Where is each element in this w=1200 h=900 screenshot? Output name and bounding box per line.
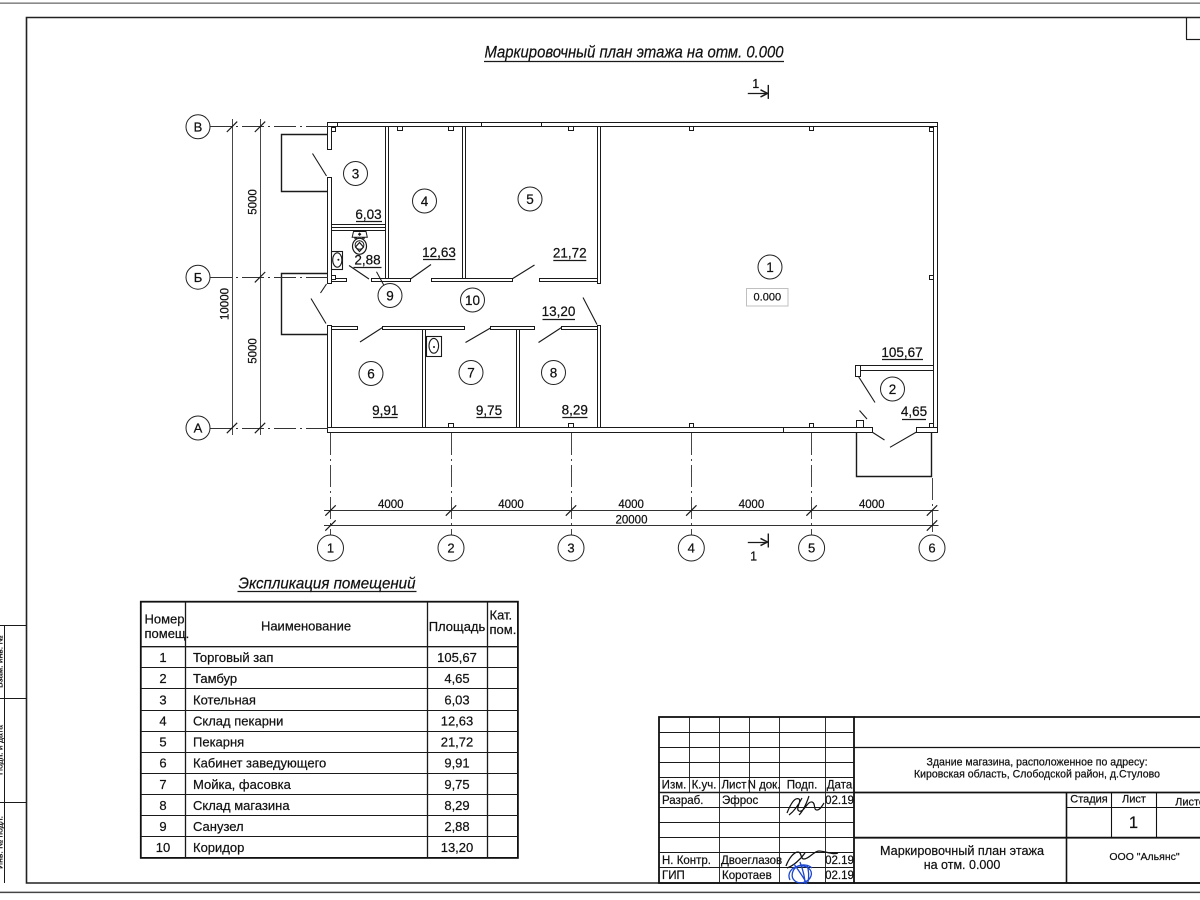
svg-text:21,72: 21,72 [441, 735, 474, 750]
svg-text:4000: 4000 [378, 499, 404, 511]
svg-text:2: 2 [889, 382, 897, 397]
svg-text:Б: Б [194, 270, 203, 285]
svg-text:6,03: 6,03 [355, 207, 381, 222]
svg-text:Номер: Номер [145, 612, 185, 627]
svg-text:1: 1 [159, 650, 166, 665]
svg-text:9: 9 [386, 288, 394, 303]
svg-text:9,75: 9,75 [444, 777, 469, 792]
svg-text:10: 10 [156, 840, 170, 855]
svg-text:4,65: 4,65 [444, 671, 469, 686]
svg-text:6,03: 6,03 [444, 692, 469, 707]
svg-text:1: 1 [766, 260, 774, 275]
svg-text:В: В [194, 119, 203, 134]
svg-text:02.19: 02.19 [825, 795, 854, 807]
svg-text:8: 8 [159, 798, 166, 813]
svg-text:10000: 10000 [220, 288, 232, 320]
svg-text:02.19: 02.19 [825, 855, 854, 867]
svg-text:помещ.: помещ. [145, 626, 190, 641]
svg-text:4: 4 [159, 713, 166, 728]
svg-text:Кат.: Кат. [490, 608, 513, 623]
svg-text:Двоеглазов: Двоеглазов [721, 855, 782, 867]
svg-text:13,20: 13,20 [441, 840, 474, 855]
svg-text:4000: 4000 [498, 499, 524, 511]
svg-text:Эфрос: Эфрос [722, 795, 759, 807]
svg-text:5: 5 [526, 192, 534, 207]
svg-text:1: 1 [752, 77, 759, 91]
svg-text:Лист: Лист [1122, 794, 1146, 806]
svg-text:4: 4 [421, 194, 429, 209]
svg-text:Коридор: Коридор [193, 840, 244, 855]
svg-text:Листов: Листов [1175, 797, 1200, 809]
svg-text:8: 8 [550, 365, 558, 380]
svg-text:5: 5 [159, 735, 166, 750]
svg-text:N док.: N док. [748, 780, 781, 792]
svg-text:Лист: Лист [722, 780, 748, 792]
svg-text:3: 3 [159, 692, 166, 707]
svg-text:4000: 4000 [618, 499, 644, 511]
svg-text:Инв. № подл.: Инв. № подл. [0, 816, 5, 869]
svg-text:Кировская область, Слободской: Кировская область, Слободской район, д.С… [914, 769, 1160, 781]
svg-text:Разраб.: Разраб. [662, 795, 703, 807]
svg-text:Подп.: Подп. [787, 780, 818, 792]
svg-text:пом.: пом. [490, 622, 517, 637]
svg-text:Н. Контр.: Н. Контр. [662, 855, 711, 867]
svg-text:1: 1 [327, 541, 334, 556]
svg-text:105,67: 105,67 [437, 650, 477, 665]
svg-text:Стадия: Стадия [1070, 794, 1108, 806]
svg-text:на отм. 0.000: на отм. 0.000 [924, 858, 1001, 872]
svg-text:7: 7 [467, 365, 475, 380]
svg-text:Мойка, фасовка: Мойка, фасовка [193, 777, 292, 792]
svg-text:Взам. инв. №: Взам. инв. № [0, 635, 5, 688]
svg-text:Санузел: Санузел [193, 819, 244, 834]
svg-text:105,67: 105,67 [881, 345, 922, 360]
svg-text:Коротаев: Коротаев [722, 870, 772, 882]
svg-text:12,63: 12,63 [422, 245, 456, 260]
svg-text:К.уч.: К.уч. [692, 780, 717, 792]
svg-text:3: 3 [567, 541, 574, 556]
svg-text:4: 4 [688, 541, 695, 556]
svg-text:12,63: 12,63 [441, 713, 474, 728]
svg-text:2: 2 [159, 671, 166, 686]
svg-text:8,29: 8,29 [562, 403, 588, 418]
svg-text:А: А [194, 421, 203, 436]
svg-text:Изм.: Изм. [662, 780, 687, 792]
svg-text:2,88: 2,88 [354, 253, 380, 268]
svg-text:21,72: 21,72 [553, 246, 587, 261]
svg-text:1: 1 [750, 550, 757, 564]
svg-text:Кабинет заведующего: Кабинет заведующего [193, 756, 326, 771]
svg-text:9,91: 9,91 [372, 403, 398, 418]
svg-text:Котельная: Котельная [193, 692, 256, 707]
svg-text:Пекарня: Пекарня [193, 735, 244, 750]
svg-text:4000: 4000 [739, 499, 765, 511]
svg-text:ООО "Альянс": ООО "Альянс" [1109, 851, 1179, 863]
svg-text:9,91: 9,91 [444, 756, 469, 771]
svg-text:10: 10 [465, 293, 480, 308]
svg-text:7: 7 [159, 777, 166, 792]
svg-text:Наименование: Наименование [261, 619, 351, 634]
svg-text:5000: 5000 [248, 338, 260, 364]
svg-text:4,65: 4,65 [901, 404, 927, 419]
svg-text:Экспликация помещений: Экспликация помещений [239, 575, 416, 592]
svg-text:9: 9 [159, 819, 166, 834]
svg-text:13,20: 13,20 [542, 304, 576, 319]
svg-text:2,88: 2,88 [444, 819, 469, 834]
svg-text:02.19: 02.19 [825, 870, 854, 882]
svg-text:0.000: 0.000 [754, 292, 782, 304]
svg-text:Торговый зап: Торговый зап [193, 650, 273, 665]
svg-text:5000: 5000 [248, 189, 260, 215]
svg-text:Склад пекарни: Склад пекарни [193, 713, 283, 728]
svg-text:1: 1 [1129, 814, 1138, 832]
svg-text:Склад магазина: Склад магазина [193, 798, 290, 813]
svg-text:5: 5 [808, 541, 815, 556]
svg-text:Площадь: Площадь [429, 619, 486, 634]
svg-text:9,75: 9,75 [476, 403, 502, 418]
svg-text:4000: 4000 [859, 499, 885, 511]
svg-text:6: 6 [928, 541, 935, 556]
svg-text:Маркировочный план этажа на от: Маркировочный план этажа на отм. 0.000 [485, 43, 784, 62]
svg-text:ГИП: ГИП [662, 870, 685, 882]
svg-text:Здание магазина, расположенное: Здание магазина, расположенное по адресу… [927, 757, 1148, 769]
svg-text:2: 2 [447, 541, 454, 556]
svg-text:3: 3 [352, 166, 360, 181]
svg-text:Подп. и дата: Подп. и дата [0, 725, 5, 775]
svg-text:Дата: Дата [827, 780, 853, 792]
svg-text:Тамбур: Тамбур [193, 671, 237, 686]
svg-text:6: 6 [367, 366, 375, 381]
svg-text:8,29: 8,29 [444, 798, 469, 813]
svg-text:6: 6 [159, 756, 166, 771]
svg-text:Маркировочный план этажа: Маркировочный план этажа [880, 844, 1045, 858]
svg-text:20000: 20000 [616, 515, 648, 527]
